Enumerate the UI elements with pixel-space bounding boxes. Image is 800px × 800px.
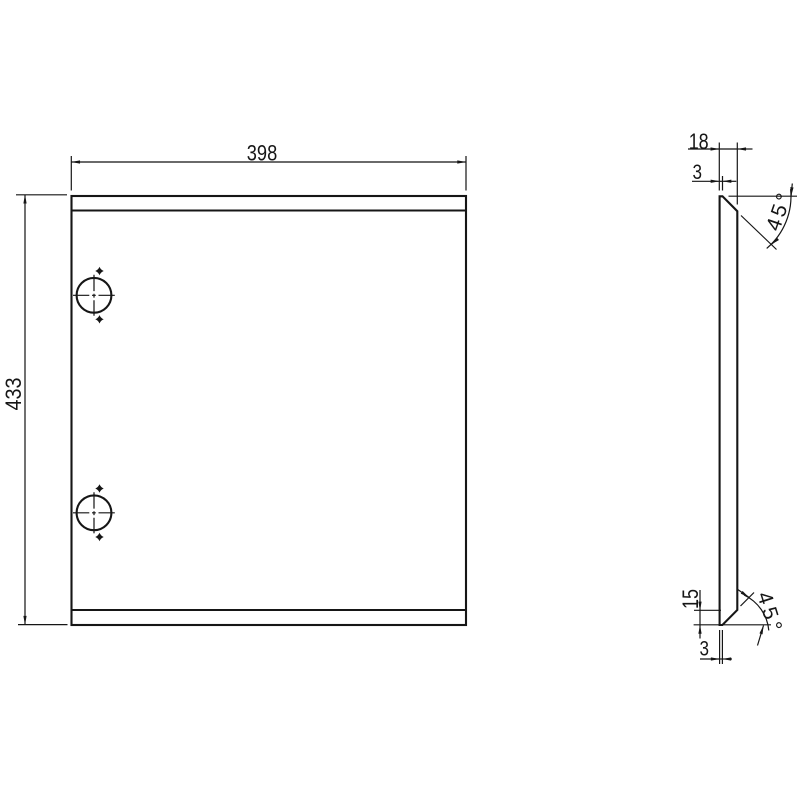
svg-text:433: 433 xyxy=(1,378,26,411)
svg-text:398: 398 xyxy=(247,140,278,165)
svg-text:45°: 45° xyxy=(762,191,796,234)
svg-text:18: 18 xyxy=(689,129,709,154)
svg-text:3: 3 xyxy=(693,161,703,184)
svg-text:15: 15 xyxy=(678,589,703,609)
svg-text:3: 3 xyxy=(700,638,710,661)
svg-text:45°: 45° xyxy=(752,589,786,634)
